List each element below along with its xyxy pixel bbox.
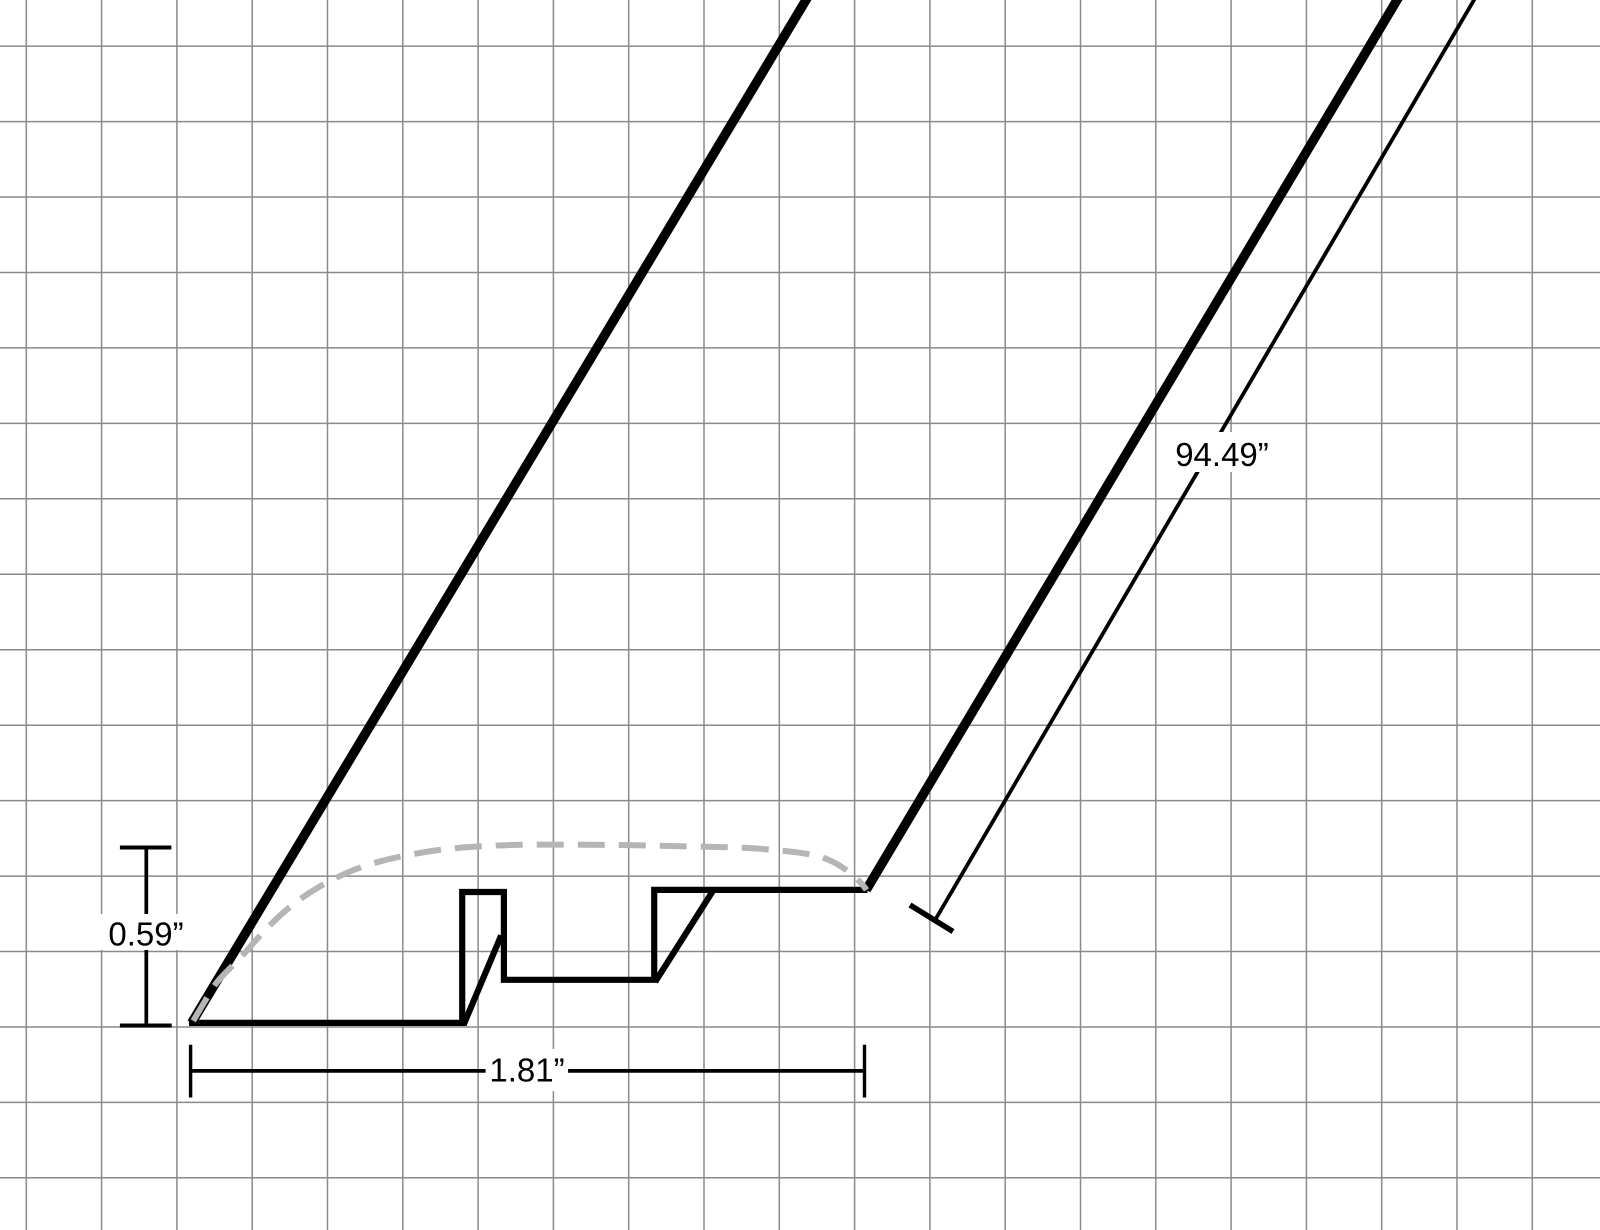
svg-text:94.49”: 94.49” (1175, 436, 1269, 473)
svg-text:0.59”: 0.59” (108, 916, 183, 953)
svg-text:1.81”: 1.81” (489, 1052, 564, 1089)
